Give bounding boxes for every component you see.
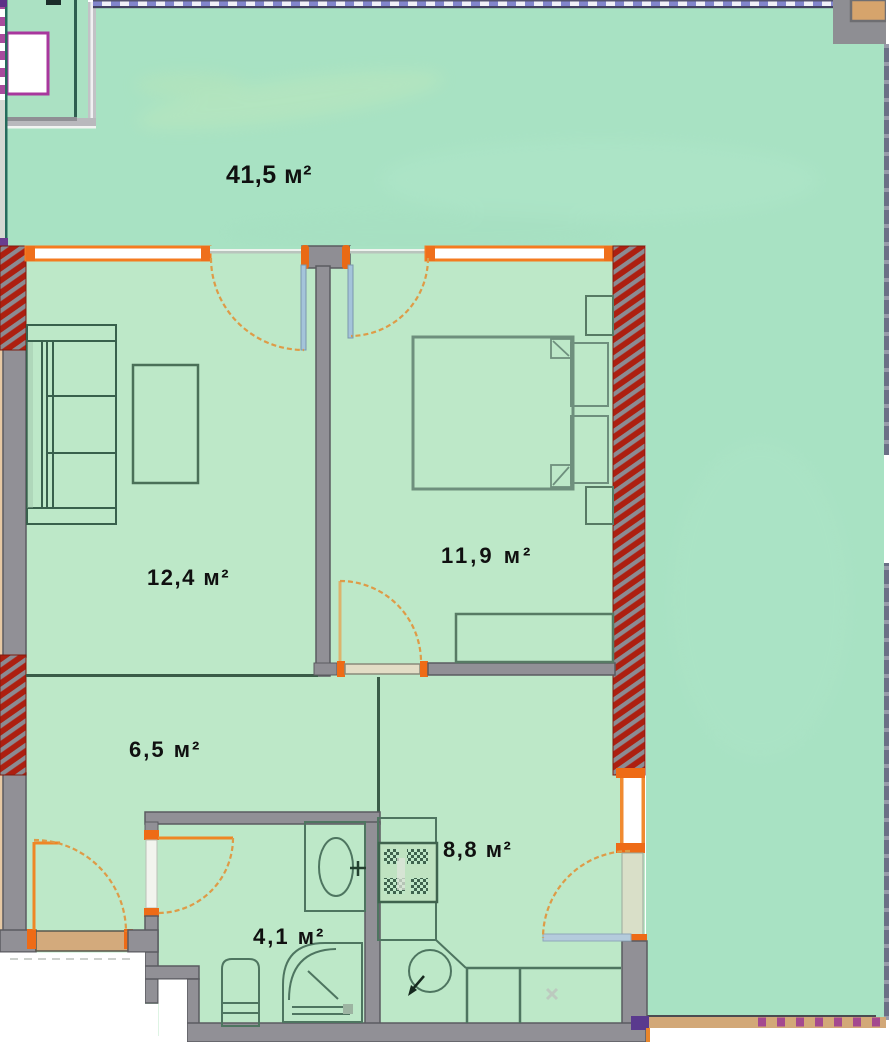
svg-text:6,5 м²: 6,5 м² (129, 737, 201, 762)
svg-text:12,4 м²: 12,4 м² (147, 565, 230, 590)
svg-text:4,1 м²: 4,1 м² (253, 924, 325, 949)
svg-text:41,5 м²: 41,5 м² (226, 161, 312, 189)
svg-text:11,9 м²: 11,9 м² (441, 543, 533, 568)
svg-text:8,8 м²: 8,8 м² (443, 837, 512, 862)
